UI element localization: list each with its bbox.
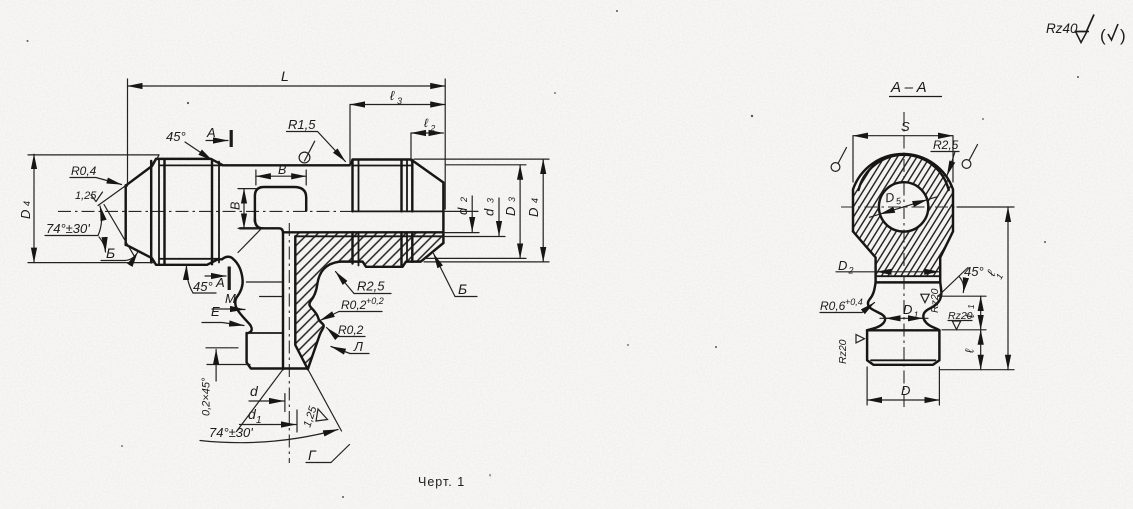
svg-text:45°: 45°	[193, 279, 213, 294]
svg-text:D: D	[838, 258, 847, 273]
svg-text:R0,4: R0,4	[71, 164, 97, 178]
svg-text:3: 3	[397, 96, 402, 106]
svg-text:A – A: A – A	[890, 79, 927, 96]
svg-text:Черт. 1: Черт. 1	[418, 475, 465, 489]
svg-text:Б: Б	[106, 245, 115, 261]
svg-text:2: 2	[459, 197, 469, 203]
svg-text:0,2×45°: 0,2×45°	[201, 377, 213, 416]
svg-text:4: 4	[22, 201, 32, 206]
svg-text:D: D	[526, 208, 541, 217]
svg-text:2: 2	[430, 123, 436, 133]
svg-text:Rz20: Rz20	[929, 288, 941, 313]
svg-text:Rz20: Rz20	[837, 339, 849, 364]
svg-text:4: 4	[530, 198, 540, 203]
svg-text:+0,2: +0,2	[366, 296, 384, 306]
svg-text:D: D	[901, 383, 910, 398]
svg-text:R1,5: R1,5	[288, 117, 316, 132]
svg-text:A: A	[215, 275, 225, 290]
svg-text:E: E	[211, 304, 220, 319]
svg-text:): )	[1120, 26, 1126, 45]
svg-text:Б: Б	[458, 281, 467, 297]
svg-text:A: A	[206, 125, 216, 140]
svg-text:(: (	[1100, 26, 1106, 45]
svg-text:B: B	[278, 163, 286, 177]
svg-text:D: D	[503, 207, 518, 216]
svg-text:1: 1	[966, 304, 976, 309]
svg-text:2: 2	[848, 266, 854, 276]
svg-text:R0,2: R0,2	[341, 298, 367, 312]
svg-text:1,25: 1,25	[75, 190, 97, 202]
svg-text:B: B	[229, 202, 243, 210]
svg-text:R0,6: R0,6	[820, 299, 846, 313]
svg-text:3: 3	[486, 198, 496, 203]
svg-text:L: L	[281, 68, 289, 84]
svg-text:d: d	[250, 383, 259, 399]
svg-text:Rz40: Rz40	[1046, 21, 1078, 36]
svg-text:R2,5: R2,5	[357, 279, 385, 294]
svg-text:d: d	[455, 207, 470, 215]
svg-text:74°±30': 74°±30'	[46, 221, 90, 236]
svg-text:D: D	[903, 302, 912, 317]
svg-text:74°±30': 74°±30'	[209, 425, 253, 440]
svg-text:45°: 45°	[166, 129, 186, 144]
svg-text:S: S	[901, 119, 910, 134]
svg-text:Л: Л	[353, 339, 363, 354]
svg-text:゜: ゜	[489, 474, 497, 483]
svg-text:R2,5: R2,5	[933, 138, 959, 152]
svg-text:45°: 45°	[964, 264, 984, 279]
svg-text:3: 3	[507, 197, 517, 202]
svg-text:R0,2: R0,2	[338, 323, 364, 337]
svg-text:d: d	[482, 208, 497, 216]
svg-text:M: M	[225, 291, 236, 306]
svg-text:D: D	[18, 210, 33, 219]
svg-text:+0,4: +0,4	[845, 297, 863, 307]
